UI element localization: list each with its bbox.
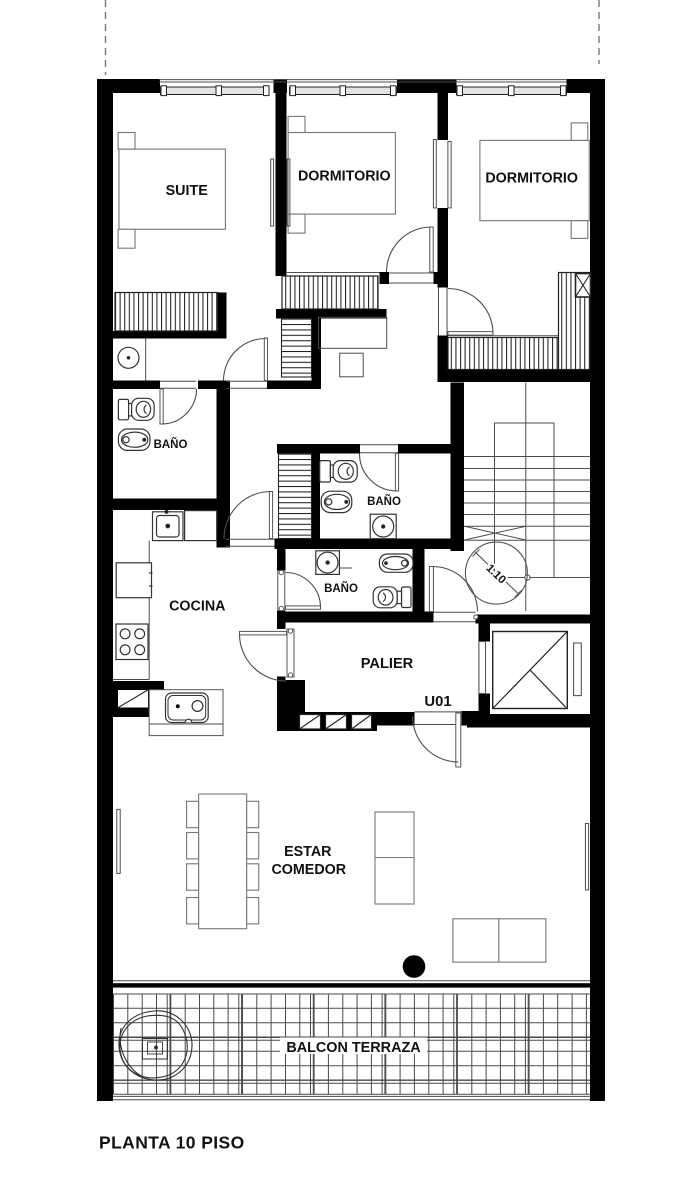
svg-text:BAÑO: BAÑO [154, 438, 188, 451]
svg-text:DORMITORIO: DORMITORIO [298, 169, 391, 185]
svg-text:BALCON TERRAZA: BALCON TERRAZA [286, 1040, 421, 1056]
svg-text:COCINA: COCINA [169, 599, 225, 615]
svg-text:BAÑO: BAÑO [367, 495, 401, 508]
svg-text:PLANTA 10 PISO: PLANTA 10 PISO [99, 1133, 245, 1153]
svg-text:BAÑO: BAÑO [324, 582, 358, 595]
svg-text:COMEDOR: COMEDOR [271, 862, 346, 878]
svg-text:U01: U01 [424, 694, 451, 710]
svg-text:DORMITORIO: DORMITORIO [485, 171, 578, 187]
svg-text:SUITE: SUITE [166, 183, 208, 199]
svg-text:PALIER: PALIER [361, 656, 414, 672]
svg-text:ESTAR: ESTAR [284, 844, 332, 860]
